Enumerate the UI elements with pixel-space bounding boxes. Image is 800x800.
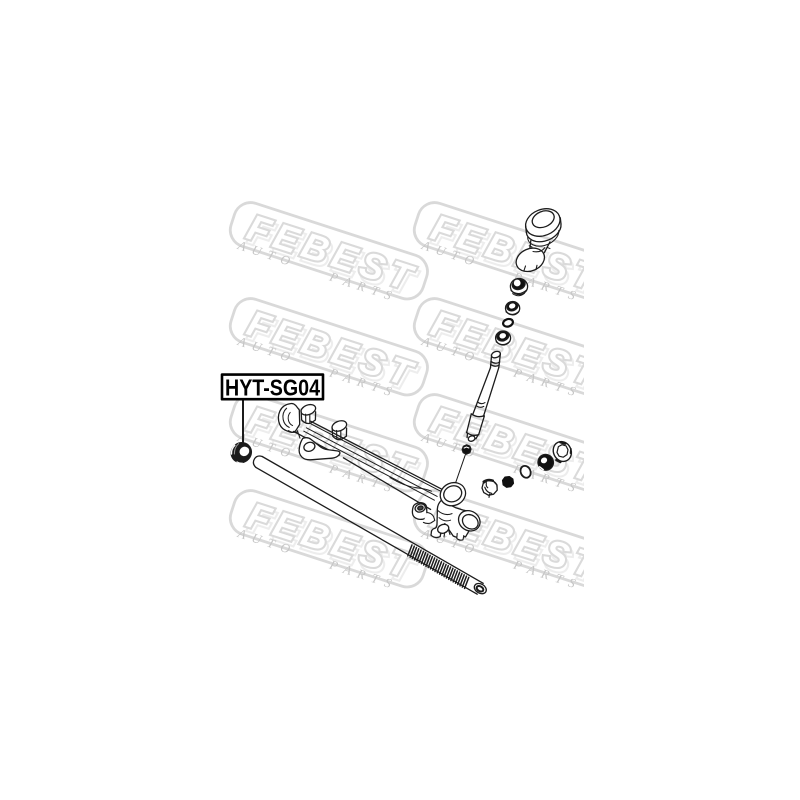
- svg-text:HYT-SG04: HYT-SG04: [225, 374, 320, 400]
